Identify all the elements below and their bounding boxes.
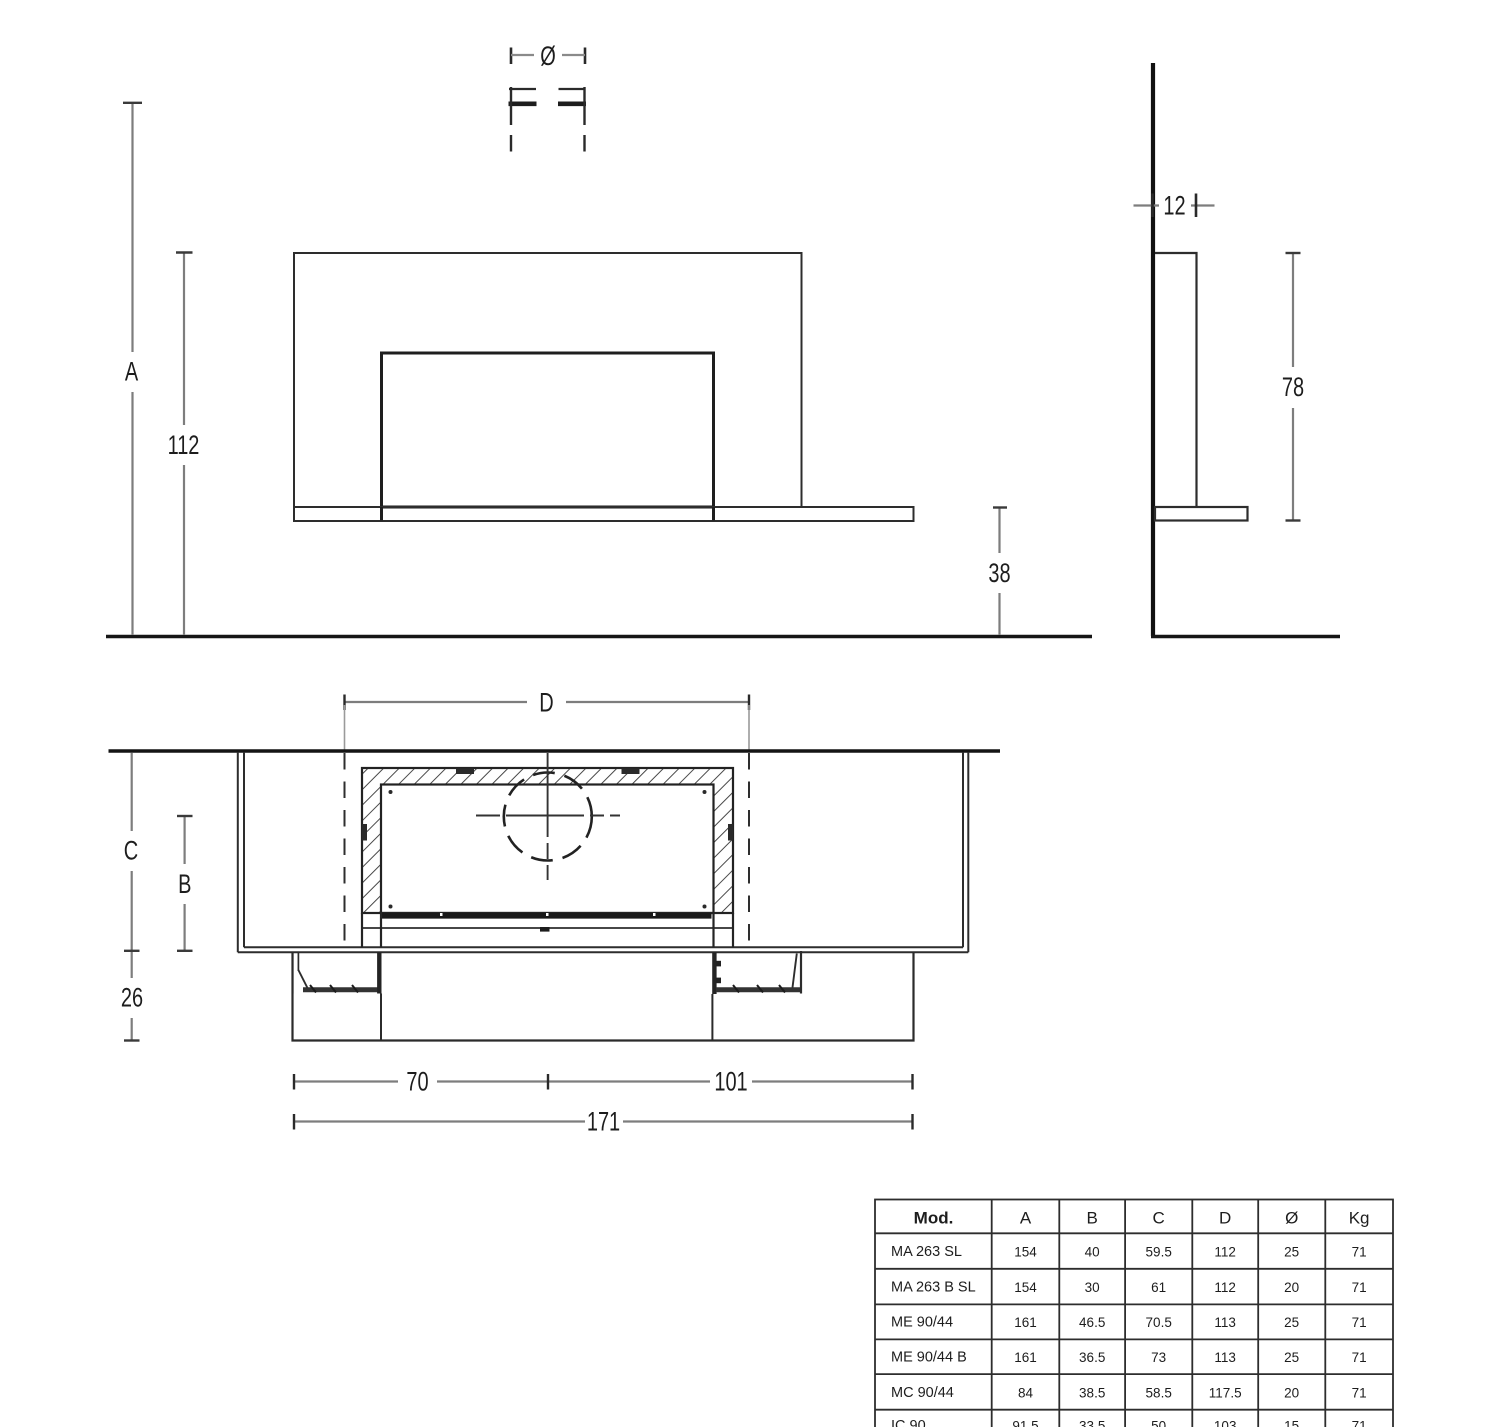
svg-text:B: B [178,869,191,900]
svg-text:C: C [124,836,138,867]
svg-text:112: 112 [1214,1245,1236,1260]
svg-text:71: 71 [1352,1315,1367,1330]
svg-text:71: 71 [1352,1350,1367,1365]
svg-text:46.5: 46.5 [1079,1315,1105,1330]
svg-text:MA 263 B SL: MA 263 B SL [891,1280,976,1296]
svg-text:38: 38 [988,558,1010,589]
svg-text:33.5: 33.5 [1079,1419,1105,1427]
svg-text:Mod.: Mod. [914,1209,954,1228]
svg-text:84: 84 [1018,1386,1034,1401]
svg-text:MC 90/44: MC 90/44 [891,1385,954,1401]
svg-text:12: 12 [1163,191,1185,222]
svg-text:71: 71 [1352,1386,1367,1401]
svg-text:20: 20 [1284,1280,1299,1295]
svg-text:26: 26 [121,983,143,1014]
svg-text:ME 90/44 B: ME 90/44 B [891,1350,967,1366]
svg-text:15: 15 [1284,1419,1299,1427]
svg-text:71: 71 [1352,1280,1367,1295]
svg-text:70: 70 [406,1067,428,1098]
svg-text:38.5: 38.5 [1079,1386,1105,1401]
svg-text:ME 90/44: ME 90/44 [891,1315,953,1331]
svg-text:MA 263 SL: MA 263 SL [891,1244,962,1260]
svg-text:A: A [1020,1209,1032,1228]
svg-text:154: 154 [1014,1280,1037,1295]
svg-text:Ø: Ø [1285,1209,1298,1228]
svg-text:40: 40 [1085,1245,1100,1260]
svg-text:171: 171 [587,1107,620,1138]
svg-text:25: 25 [1284,1315,1299,1330]
svg-text:161: 161 [1014,1315,1037,1330]
svg-text:B: B [1087,1209,1098,1228]
svg-text:161: 161 [1014,1350,1037,1365]
svg-text:112: 112 [168,430,200,461]
svg-text:30: 30 [1085,1280,1100,1295]
svg-text:Kg: Kg [1349,1209,1370,1228]
svg-text:Ø: Ø [540,41,556,72]
svg-text:91.5: 91.5 [1012,1419,1038,1427]
svg-text:113: 113 [1214,1315,1236,1330]
svg-text:IC 90: IC 90 [891,1418,926,1427]
svg-text:70.5: 70.5 [1146,1315,1172,1330]
svg-text:A: A [125,357,138,388]
svg-text:101: 101 [714,1067,747,1098]
svg-text:73: 73 [1151,1350,1166,1365]
svg-text:36.5: 36.5 [1079,1350,1105,1365]
svg-text:112: 112 [1214,1280,1236,1295]
svg-text:D: D [1219,1209,1231,1228]
svg-text:103: 103 [1214,1419,1237,1427]
svg-text:71: 71 [1352,1245,1367,1260]
svg-text:25: 25 [1284,1350,1299,1365]
svg-text:113: 113 [1214,1350,1236,1365]
svg-text:58.5: 58.5 [1146,1386,1172,1401]
svg-text:20: 20 [1284,1386,1299,1401]
svg-text:C: C [1153,1209,1165,1228]
svg-text:71: 71 [1352,1419,1367,1427]
svg-text:D: D [539,688,553,719]
svg-text:117.5: 117.5 [1209,1386,1242,1401]
svg-text:50: 50 [1151,1419,1166,1427]
svg-text:154: 154 [1014,1245,1037,1260]
svg-text:61: 61 [1151,1280,1166,1295]
svg-text:78: 78 [1282,372,1304,403]
svg-text:59.5: 59.5 [1146,1245,1172,1260]
svg-text:25: 25 [1284,1245,1299,1260]
